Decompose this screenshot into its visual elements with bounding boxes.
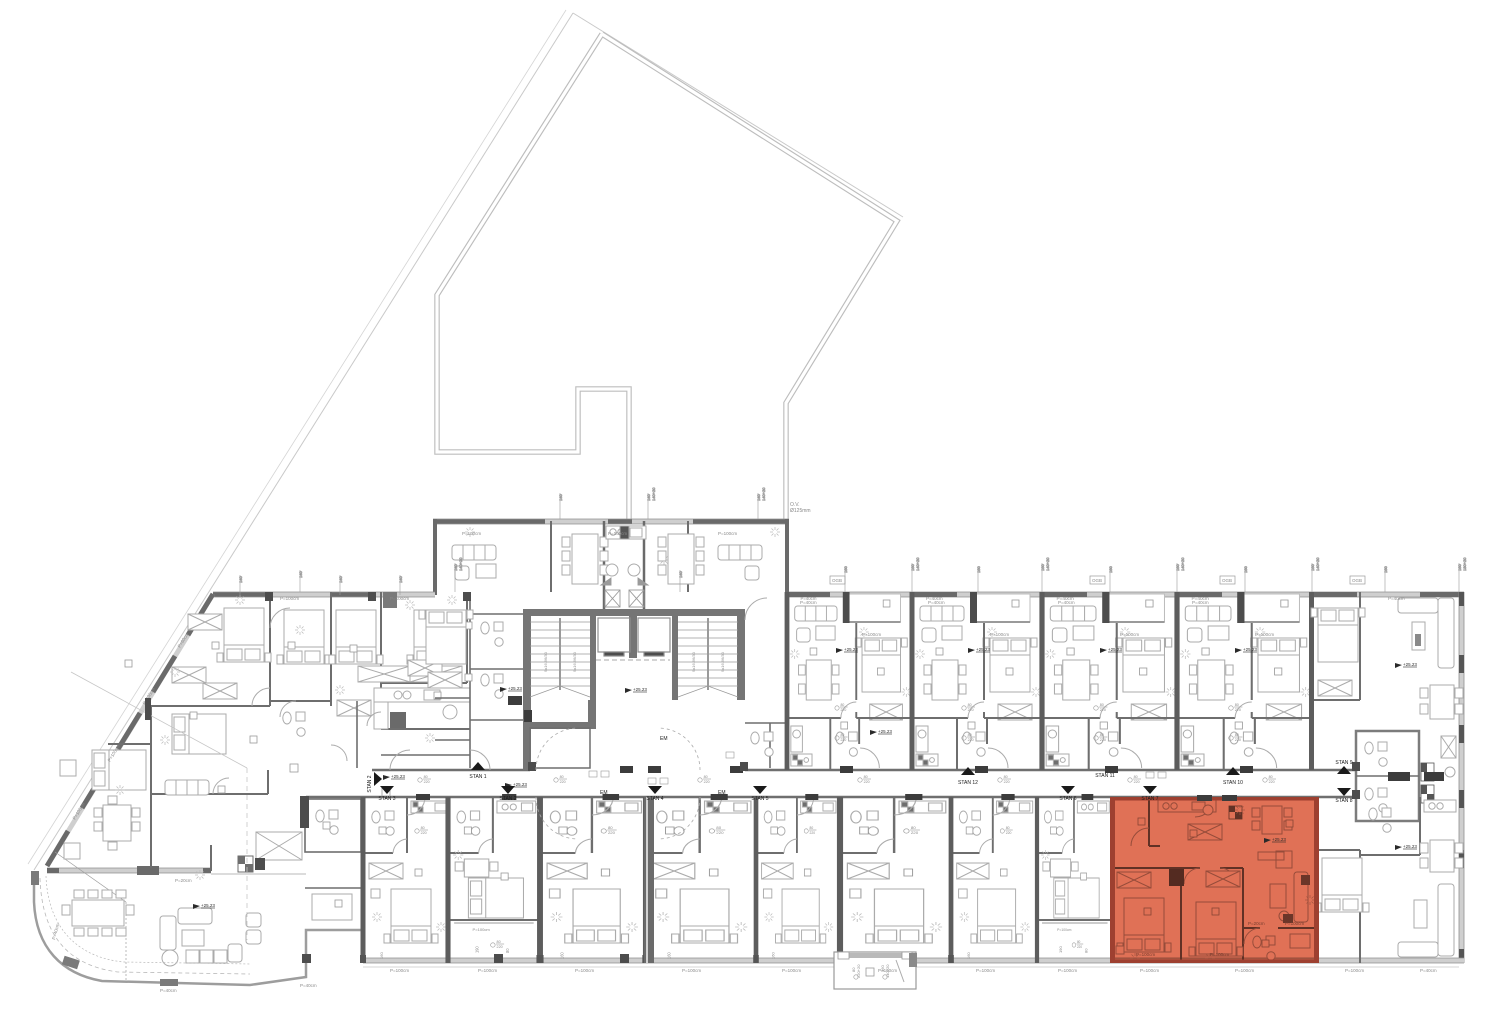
svg-text:EM: EM	[660, 736, 668, 742]
svg-text:P=100cm: P=100cm	[782, 968, 801, 973]
svg-text:180+20: 180+20	[1462, 557, 1467, 571]
svg-text:P=100cm: P=100cm	[1255, 632, 1274, 637]
svg-text:160: 160	[1243, 566, 1248, 573]
svg-text:STAN 6: STAN 6	[1059, 796, 1076, 802]
svg-text:STAN 5: STAN 5	[751, 796, 768, 802]
svg-text:9x16.66/30: 9x16.66/30	[572, 651, 577, 672]
svg-text:140: 140	[398, 576, 403, 583]
svg-text:P=100cm: P=100cm	[462, 531, 481, 536]
svg-text:+25.23: +25.23	[1108, 647, 1122, 652]
svg-text:OGB: OGB	[1352, 578, 1362, 583]
svg-text:P=40cm: P=40cm	[928, 600, 945, 605]
svg-text:STAN 11: STAN 11	[1095, 773, 1115, 779]
svg-text:140+20: 140+20	[915, 557, 920, 571]
svg-text:160: 160	[976, 566, 981, 573]
svg-text:P=100cm: P=100cm	[478, 968, 497, 973]
svg-text:P=100cm: P=100cm	[608, 531, 627, 536]
svg-text:220+20: 220+20	[856, 964, 861, 978]
svg-text:STAN 12: STAN 12	[958, 780, 978, 786]
svg-text:+25.23: +25.23	[1243, 647, 1257, 652]
svg-text:EM: EM	[600, 790, 608, 796]
svg-text:EM: EM	[718, 790, 726, 796]
svg-text:140: 140	[338, 576, 343, 583]
svg-text:P=100cm: P=100cm	[878, 968, 897, 973]
svg-text:STAN 9: STAN 9	[1335, 760, 1352, 766]
svg-text:STAN 2: STAN 2	[367, 775, 373, 792]
svg-text:P=100cm: P=100cm	[1120, 632, 1139, 637]
svg-text:160: 160	[1383, 566, 1388, 573]
svg-text:+25.23: +25.23	[844, 647, 858, 652]
svg-text:STAN 3: STAN 3	[378, 796, 395, 802]
svg-text:+25.23: +25.23	[1403, 662, 1417, 667]
svg-text:+25.23: +25.23	[513, 782, 527, 787]
svg-text:P=100cm: P=100cm	[862, 632, 881, 637]
svg-text:P=100cm: P=100cm	[575, 968, 594, 973]
svg-text:9x16.66/30: 9x16.66/30	[543, 651, 548, 672]
svg-text:P=100cm: P=100cm	[682, 968, 701, 973]
svg-text:P=40cm: P=40cm	[300, 983, 317, 988]
svg-text:P=40cm: P=40cm	[1058, 600, 1075, 605]
svg-text:P=100cm: P=100cm	[1140, 968, 1159, 973]
svg-text:+25.23: +25.23	[391, 774, 405, 779]
svg-text:140: 140	[678, 571, 683, 578]
svg-text:140+20: 140+20	[651, 487, 656, 501]
svg-text:OGB: OGB	[1222, 578, 1232, 583]
svg-text:P=100cm: P=100cm	[390, 596, 409, 601]
svg-text:140+20: 140+20	[1180, 557, 1185, 571]
svg-text:P=40cm: P=40cm	[1420, 968, 1437, 973]
svg-text:OGB: OGB	[832, 578, 842, 583]
svg-text:Ø125mm: Ø125mm	[790, 508, 811, 514]
svg-text:P=40cm: P=40cm	[1192, 600, 1209, 605]
svg-text:P=40cm: P=40cm	[160, 988, 177, 993]
svg-text:P=40cm: P=40cm	[800, 600, 817, 605]
svg-text:9x16.66/30: 9x16.66/30	[691, 651, 696, 672]
svg-text:P=100cm: P=100cm	[280, 596, 299, 601]
svg-text:OGB: OGB	[1092, 578, 1102, 583]
svg-text:+25.23: +25.23	[201, 903, 215, 908]
svg-text:140+20: 140+20	[1315, 557, 1320, 571]
svg-text:140+20: 140+20	[761, 487, 766, 501]
svg-text:STAN 8: STAN 8	[1335, 798, 1352, 804]
svg-text:9x16.66/30: 9x16.66/30	[720, 651, 725, 672]
svg-text:P=100cm: P=100cm	[390, 968, 409, 973]
svg-text:140: 140	[558, 494, 563, 501]
svg-text:P=100cm: P=100cm	[976, 968, 995, 973]
svg-text:+25.23: +25.23	[508, 686, 522, 691]
svg-text:140: 140	[298, 571, 303, 578]
svg-text:160: 160	[843, 566, 848, 573]
svg-text:140+20: 140+20	[1045, 557, 1050, 571]
svg-text:P=100cm: P=100cm	[1235, 968, 1254, 973]
svg-text:+25.23: +25.23	[878, 729, 892, 734]
svg-text:P=100cm: P=100cm	[990, 632, 1009, 637]
svg-text:STAN 10: STAN 10	[1223, 780, 1243, 786]
svg-text:P=40cm: P=40cm	[1388, 596, 1405, 601]
svg-text:P=100cm: P=100cm	[718, 531, 737, 536]
svg-text:P=20cm: P=20cm	[175, 878, 192, 883]
svg-text:+25.23: +25.23	[633, 687, 647, 692]
svg-text:STAN 4: STAN 4	[646, 796, 663, 802]
svg-text:140: 140	[238, 576, 243, 583]
svg-text:STAN 1: STAN 1	[469, 774, 486, 780]
svg-text:160: 160	[1108, 566, 1113, 573]
svg-text:STAN 2: STAN 2	[499, 796, 516, 802]
svg-text:+25.23: +25.23	[1272, 837, 1286, 842]
svg-text:P=100cm: P=100cm	[1058, 968, 1077, 973]
svg-text:140+20: 140+20	[458, 557, 463, 571]
svg-text:+25.23: +25.23	[976, 647, 990, 652]
svg-text:+25.23: +25.23	[1403, 844, 1417, 849]
svg-text:P=100cm: P=100cm	[1345, 968, 1364, 973]
svg-text:STAN 7: STAN 7	[1141, 796, 1158, 802]
